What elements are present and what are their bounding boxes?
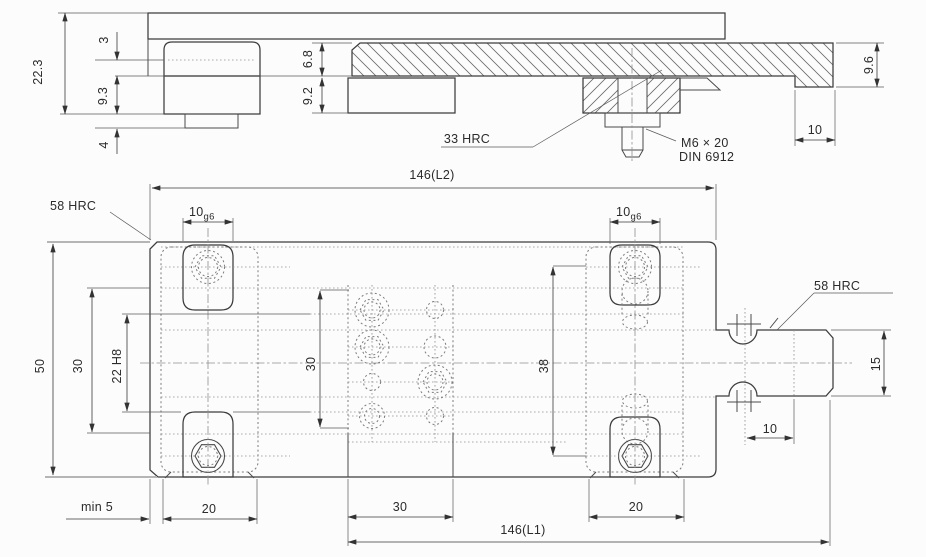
dim-screw-span: 38	[537, 359, 551, 374]
screw-top-left	[161, 251, 290, 284]
thin-plate-end	[680, 78, 720, 90]
top-plate	[148, 13, 725, 39]
drawing-canvas: 22.3 3 9.3 4 6.8 9.2 9.6 10 146(L2)	[0, 0, 926, 557]
dim-min-wall: min 5	[81, 500, 113, 514]
dim-gib-depth: 9.3	[96, 87, 110, 105]
right-pocket	[586, 247, 683, 472]
dim-tab-height: 4	[97, 141, 111, 148]
leader-58hrc-right	[777, 293, 814, 330]
plan-view: 58 HRC 58 HRC 10g6 10g6 50 30 22 H8	[33, 199, 893, 546]
dim-groove-width: 22 H8	[110, 349, 124, 384]
dim-slot-left-len: 20	[202, 502, 217, 516]
leader-58hrc-left	[110, 212, 151, 240]
clamp-tab	[185, 114, 238, 128]
dim-slot-right-len: 20	[629, 500, 644, 514]
body-outline	[150, 242, 833, 477]
left-pocket	[161, 247, 258, 472]
dim-tongue-width: 15	[869, 357, 883, 372]
dim-length-l2: 146(L2)	[409, 168, 454, 182]
leader-screw	[646, 129, 676, 141]
dim-pocket-span: 30	[71, 359, 85, 374]
screw-flange	[605, 113, 660, 127]
dim-length-l1: 146(L1)	[500, 523, 545, 537]
label-hardness-33: 33 HRC	[444, 132, 490, 146]
base-block	[348, 78, 455, 113]
screw-shank	[622, 127, 643, 157]
dim-rail-bottom: 9.2	[301, 87, 315, 105]
section-view: 22.3 3 9.3 4 6.8 9.2 9.6 10 146(L2)	[31, 13, 884, 240]
dim-slot-fit-left: 10g6	[189, 205, 215, 223]
dim-block-span: 30	[304, 357, 318, 372]
dim-total-height: 22.3	[31, 59, 45, 85]
technical-drawing: 22.3 3 9.3 4 6.8 9.2 9.6 10 146(L2)	[0, 0, 926, 557]
label-screw-norm: DIN 6912	[679, 150, 734, 164]
dim-tongue-inset: 10	[763, 422, 778, 436]
label-hardness-left: 58 HRC	[50, 199, 96, 213]
dim-gib-step: 3	[97, 36, 111, 43]
clamp-block-upper	[164, 42, 260, 76]
clamp-block-lower	[164, 76, 260, 114]
dim-block-width: 30	[393, 500, 408, 514]
dim-body-width: 50	[33, 359, 47, 374]
dim-slot-fit-right: 10g6	[616, 205, 642, 223]
dim-rail-top: 6.8	[301, 50, 315, 68]
screw-bottom-left	[161, 440, 290, 473]
label-hardness-right: 58 HRC	[814, 279, 860, 293]
dim-end-offset: 10	[808, 123, 823, 137]
label-screw-spec: M6 × 20	[681, 136, 729, 150]
tongue	[727, 308, 794, 445]
dim-end-height: 9.6	[862, 56, 876, 74]
